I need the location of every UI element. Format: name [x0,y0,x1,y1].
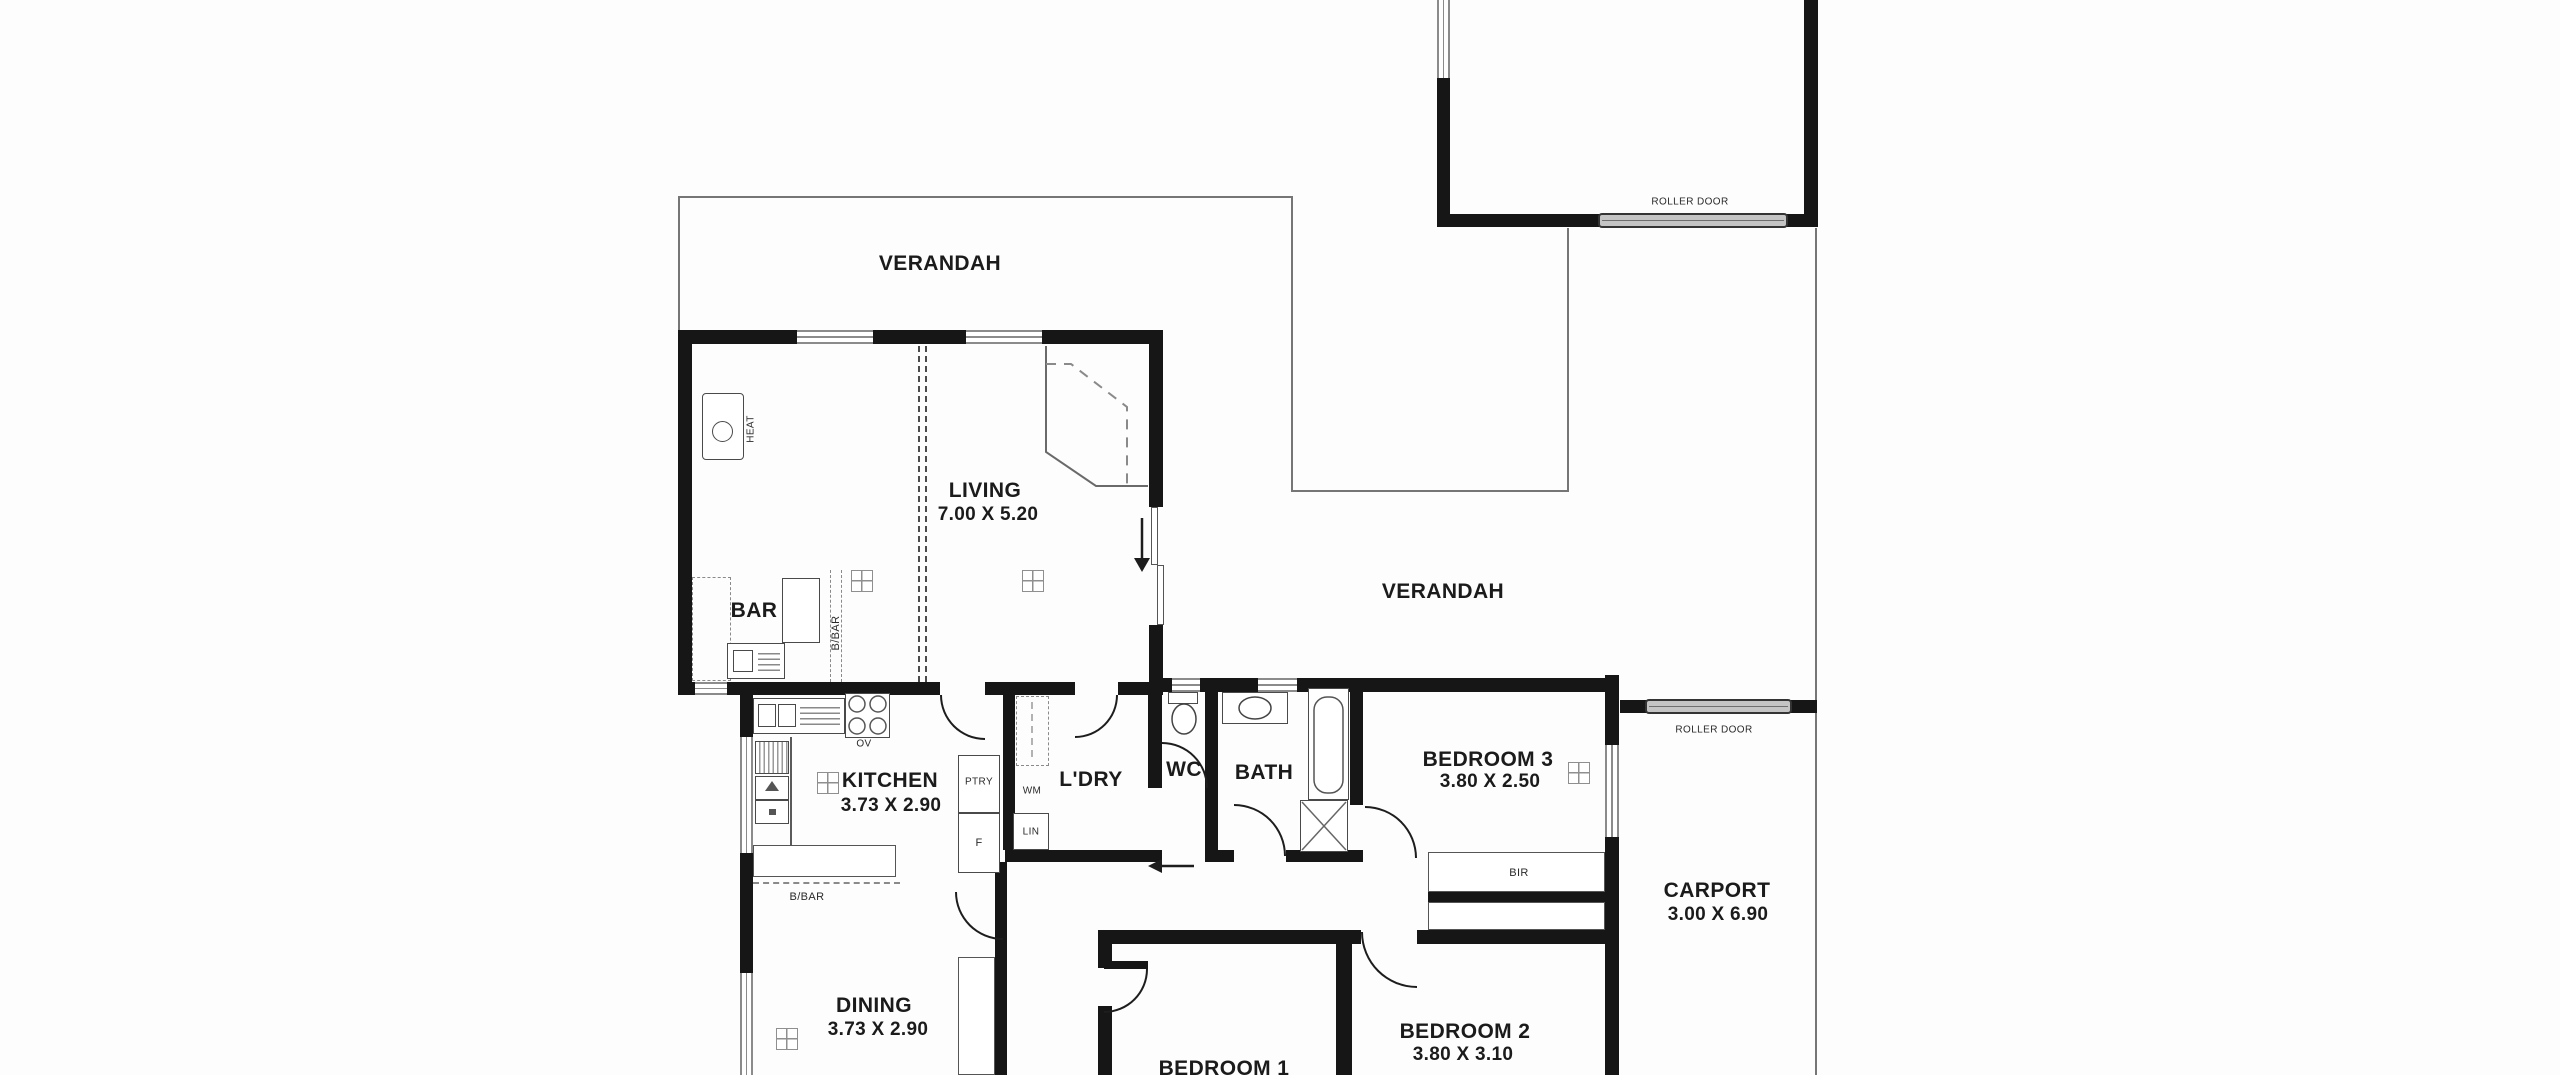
wall [740,695,753,737]
wall [678,682,695,695]
wall [1163,678,1172,692]
ceiling-light-icon [776,1028,798,1050]
bedroom1-door-arc [1104,969,1148,1013]
wall [873,330,966,344]
wall [1218,850,1234,862]
laundry-label: L'DRY [1059,768,1122,792]
wall [1200,678,1258,692]
verandah-boundary-line [1291,196,1293,492]
dining-label: DINING [836,994,912,1018]
carport-roller-door [1645,699,1792,714]
door-leaf [1104,961,1148,969]
wall [1350,692,1363,805]
wall [985,682,1075,695]
wall [1042,330,1163,344]
bedroom3-dims: 3.80 X 2.50 [1440,771,1541,793]
garage-roller-door [1598,213,1788,228]
built-in-robe-bed2 [1428,902,1605,930]
carport-roller-door-label: ROLLER DOOR [1675,725,1752,736]
kitchen-drawer [755,800,789,824]
site-boundary-line [1815,228,1817,1075]
ceiling-light-icon [851,570,873,592]
living-dims: 7.00 X 5.20 [938,504,1039,526]
toilet-cistern [1168,692,1198,704]
garage-roller-door-label: ROLLER DOOR [1651,197,1728,208]
bench-edge [790,737,792,845]
living-label: LIVING [949,479,1021,503]
verandah-boundary-line [678,196,1292,198]
floor-plan: ROLLER DOOR ROLLER DOOR [0,0,2560,1075]
window [797,330,873,344]
entry-door-panel [1157,565,1164,625]
heater-label: HEAT [746,415,757,443]
wall [1786,214,1818,227]
ceiling-light-icon [1022,570,1044,592]
kitchen-dims: 3.73 X 2.90 [841,795,942,817]
wall [1804,0,1818,227]
kitchen-breakfast-bar-bench [753,845,896,877]
window [1172,678,1200,692]
wall [1620,700,1647,713]
wc-label: WC [1166,758,1202,782]
bedroom2-label: BEDROOM 2 [1400,1020,1531,1044]
wall [1790,700,1817,713]
wall [1098,930,1361,944]
bar-counter [782,578,820,643]
bathtub [1308,688,1349,800]
wall [1205,692,1218,862]
washing-machine [1016,696,1049,766]
entry-arrow-icon [1134,518,1150,572]
cooktop [845,693,890,738]
wall [1605,837,1619,1075]
bath-label: BATH [1235,761,1293,785]
fridge-label: F [975,837,982,849]
wall [1437,78,1450,227]
heater-flue [712,421,733,442]
wall [1098,1006,1112,1075]
kitchen-door-arc [940,695,985,740]
entry-door-panel [1151,507,1158,565]
kitchen-breakfast-bar-label: B/BAR [789,891,824,903]
bedroom2-door-arc [1361,932,1417,988]
wall [1149,625,1163,695]
pantry-label: PTRY [965,777,993,788]
verandah-boundary-line [1291,490,1569,492]
bath-door-arc [1234,804,1286,856]
built-in-robe-label: BIR [1509,867,1529,879]
laundry-door-arc [1075,695,1118,738]
wall [740,853,753,973]
bath-basin [1222,692,1288,724]
verandah-top-label: VERANDAH [879,252,1001,276]
window [740,737,753,853]
kitchen-label: KITCHEN [842,769,938,793]
wall [1005,850,1162,862]
carport-dims: 3.00 X 6.90 [1668,904,1769,926]
dining-door-arc [955,892,1003,940]
hall-cupboard [958,957,995,1075]
dining-dims: 3.73 X 2.90 [828,1019,929,1041]
window [1605,745,1619,837]
ceiling-light-icon [1568,762,1590,784]
wall [1437,214,1602,227]
wall [1417,930,1607,944]
dishwasher [755,741,789,774]
bedroom1-label: BEDROOM 1 [1159,1057,1290,1075]
kitchen-drawer [755,776,789,800]
bar-sink-drainer [758,649,780,674]
open-plan-divider [918,346,920,682]
wall [1605,675,1619,745]
wall [727,682,940,695]
window [740,973,753,1075]
window [966,330,1042,344]
kitchen-sink-bowl [758,704,776,727]
kitchen-sink-drainer [800,703,840,729]
plan-annotations [0,0,2560,1075]
verandah-boundary-line [1567,228,1569,491]
window [1258,678,1297,692]
oven-label: OV [856,739,871,750]
linen-label: LIN [1023,827,1040,838]
bar-label: BAR [731,599,778,623]
open-plan-divider [925,346,927,682]
corner-feature-dashed [1046,364,1127,486]
bedroom3-door-arc [1365,806,1417,858]
wall [1148,692,1162,788]
shower [1300,800,1348,852]
window [695,682,727,695]
bar-sink-bowl [733,650,753,672]
wall [1428,892,1605,902]
kitchen-breakfast-bar-edge [753,882,900,884]
wall [678,330,692,685]
bar-bench [692,577,731,681]
wall [678,330,797,344]
window [1437,0,1450,80]
toilet-bowl [1172,704,1196,734]
ceiling-light-icon [817,772,839,794]
wall [1336,944,1352,1075]
verandah-side-label: VERANDAH [1382,580,1504,604]
kitchen-sink-bowl [778,704,796,727]
corner-feature-outline [1046,346,1148,486]
wall [1149,330,1163,507]
bedroom3-label: BEDROOM 3 [1423,748,1554,772]
bar-breakfast-bar-label: B/BAR [830,615,842,650]
washing-machine-label: WM [1023,786,1042,797]
verandah-boundary-line [678,196,680,332]
bedroom2-dims: 3.80 X 3.10 [1413,1044,1514,1066]
carport-label: CARPORT [1664,879,1771,903]
